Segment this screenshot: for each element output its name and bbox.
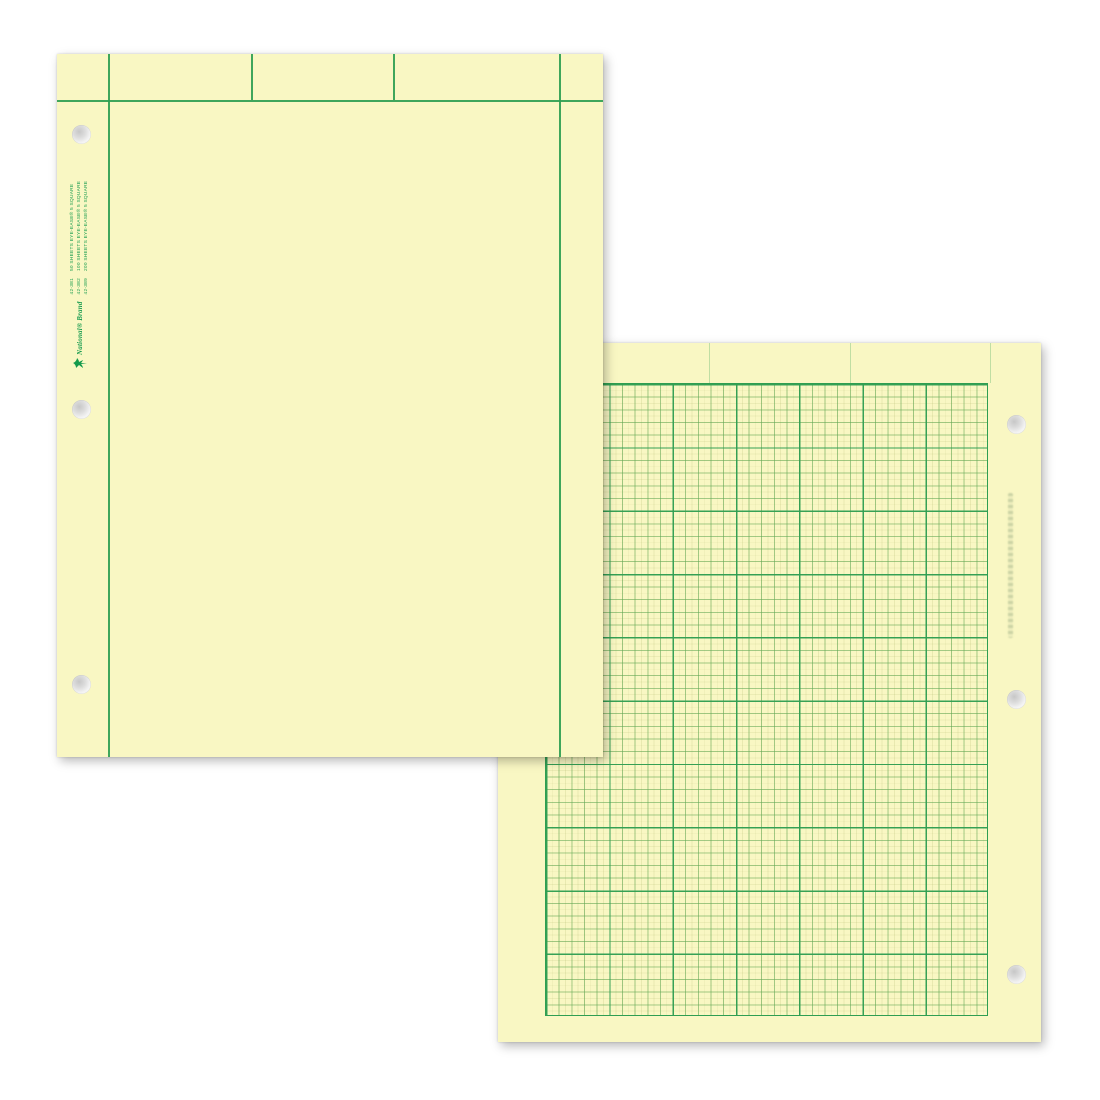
show-through-legend-smudge	[1008, 493, 1013, 638]
header-rule	[57, 100, 603, 102]
punch-hole	[72, 125, 91, 144]
punch-hole	[1007, 690, 1026, 709]
punch-hole	[72, 675, 91, 694]
brand-name: National® Brand	[76, 301, 84, 355]
header-divider	[393, 54, 395, 100]
legend-line: 42-38150 SHEETS EYE-EASE® 5 SQUARE	[70, 181, 76, 295]
graph-grid	[545, 383, 988, 1016]
brand-logo: National® Brand	[73, 301, 87, 368]
right-margin-rule	[559, 54, 561, 757]
product-code: 42-382	[77, 278, 83, 294]
punch-hole	[1007, 965, 1026, 984]
show-through-header-line	[990, 343, 991, 383]
header-divider	[251, 54, 253, 100]
legend-lines: 42-38150 SHEETS EYE-EASE® 5 SQUARE 42-38…	[70, 181, 90, 295]
punch-hole	[72, 400, 91, 419]
product-code: 42-381	[70, 278, 76, 294]
legend-line: 42-382100 SHEETS EYE-EASE® 5 SQUARE	[77, 181, 83, 295]
product-desc: 200 SHEETS EYE-EASE® 5 SQUARE	[84, 181, 89, 271]
left-margin-rule	[108, 54, 110, 757]
product-code: 42-389	[84, 278, 90, 294]
product-desc: 50 SHEETS EYE-EASE® 5 SQUARE	[70, 184, 75, 271]
legend-line: 42-389200 SHEETS EYE-EASE® 5 SQUARE	[84, 181, 90, 295]
side-legend: National® Brand 42-38150 SHEETS EYE-EASE…	[70, 181, 90, 368]
product-image-stage: National® Brand 42-38150 SHEETS EYE-EASE…	[0, 0, 1100, 1100]
show-through-header-line	[850, 343, 851, 383]
punch-hole	[1007, 415, 1026, 434]
product-desc: 100 SHEETS EYE-EASE® 5 SQUARE	[77, 181, 82, 271]
show-through-header-line	[709, 343, 710, 383]
front-sheet-plain-side: National® Brand 42-38150 SHEETS EYE-EASE…	[57, 54, 603, 757]
eagle-logo-icon	[73, 358, 87, 368]
